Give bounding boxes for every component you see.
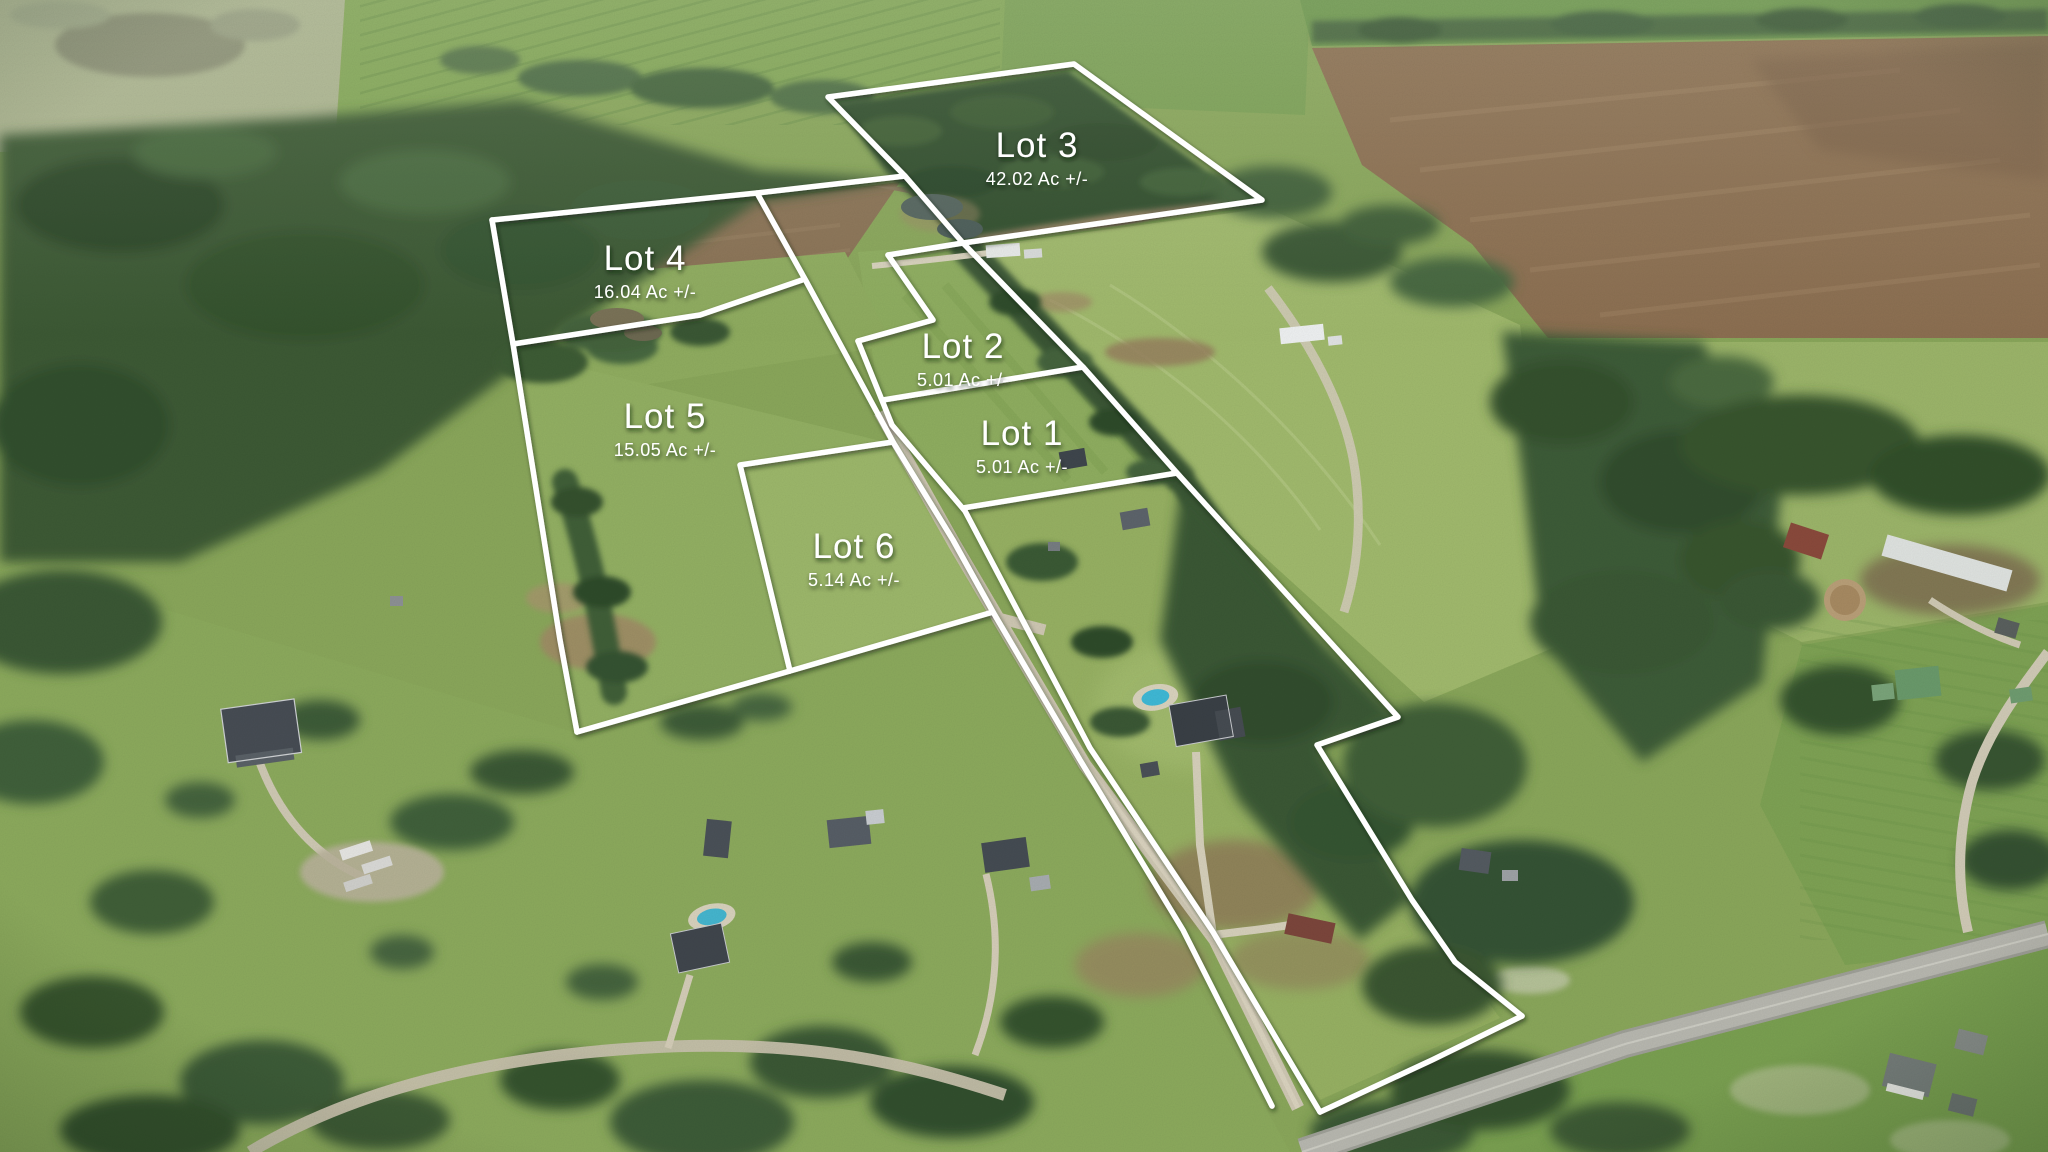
- lot-acreage-label-lot-5: 15.05 Ac +/-: [614, 440, 717, 460]
- lot-acreage-label-lot-2: 5.01 Ac +/-: [917, 370, 1009, 390]
- lot-name-label-lot-5: Lot 5: [624, 397, 707, 436]
- lot-name-label-lot-6: Lot 6: [813, 527, 896, 566]
- lot-acreage-label-lot-4: 16.04 Ac +/-: [594, 282, 697, 302]
- lot-name-label-lot-1: Lot 1: [981, 414, 1064, 453]
- lot-name-label-lot-4: Lot 4: [604, 239, 687, 278]
- lot-acreage-label-lot-3: 42.02 Ac +/-: [986, 169, 1089, 189]
- lot-name-label-lot-3: Lot 3: [996, 126, 1079, 165]
- lot-acreage-label-lot-1: 5.01 Ac +/-: [976, 457, 1068, 477]
- lot-acreage-label-lot-6: 5.14 Ac +/-: [808, 570, 900, 590]
- aerial-lot-map: Lot 15.01 Ac +/-Lot 25.01 Ac +/-Lot 342.…: [0, 0, 2048, 1152]
- lot-name-label-lot-2: Lot 2: [922, 327, 1005, 366]
